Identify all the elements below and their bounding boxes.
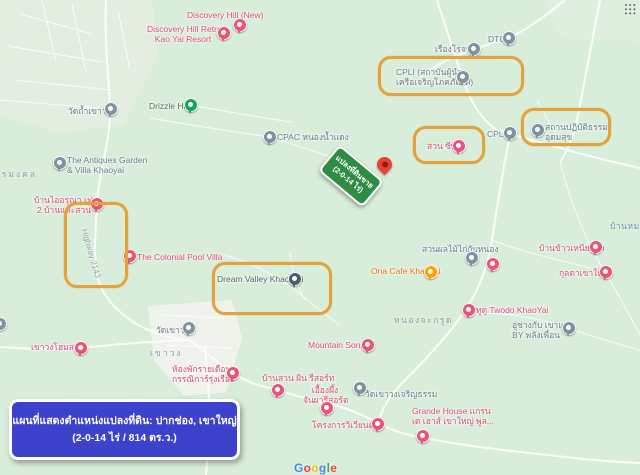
poi-label-grande-house[interactable]: Grande House แกรน เด เฮาส์ เขาใหญ่ พูล..…	[412, 406, 494, 426]
area-label-nong-ja-krut: หนองจะกรูด	[394, 313, 453, 327]
poi-pin-discovery-hill-retreat[interactable]	[217, 26, 229, 44]
poi-pin-discovery-hill-new[interactable]	[233, 18, 245, 36]
google-logo-letter: g	[319, 461, 327, 475]
target-marker-core	[380, 160, 388, 168]
poi-label-discovery-hill-retreat[interactable]: Discovery Hill Retreat Kao Yai Resort	[147, 24, 219, 44]
apps-grid-icon[interactable]	[625, 4, 636, 15]
poi-label-cpac[interactable]: CPAC หนองน้ำแดง	[277, 132, 349, 142]
map-caption-line2: (2-0-14 ไร่ / 814 ตร.ว.)	[72, 430, 177, 446]
poi-label-line: เอื้องผึ้ง	[303, 385, 347, 395]
poi-label-line: Discovery Hill Retreat	[147, 24, 219, 34]
highlight-box-cpli	[378, 56, 524, 96]
poi-label-line: The Antiques Garden	[67, 155, 147, 165]
poi-pin-baan-suan-phin[interactable]	[271, 383, 283, 401]
map-canvas[interactable]: Discovery Hill (New) Discovery Hill Retr…	[0, 0, 640, 475]
poi-label-hong-phak[interactable]: ห้องพักรายเดือน กรรณิการ์รุ่งเรือง	[172, 364, 224, 384]
map-caption-box: แผนที่แสดงตำแหน่งแปลงที่ดิน: ปากช่อง, เข…	[9, 399, 240, 460]
map-caption-line1: แผนที่แสดงตำแหน่งแปลงที่ดิน: ปากช่อง, เข…	[12, 413, 236, 429]
poi-pin-cpac[interactable]	[263, 130, 275, 148]
poi-pin-vivienda-2[interactable]	[371, 417, 383, 435]
poi-label-baan-suan-phin[interactable]: บ้านสวน ผิน รีสอร์ท	[262, 373, 334, 383]
poi-label-line: เด เฮาส์ เขาใหญ่ พูล...	[412, 416, 494, 426]
poi-pin-au-chang[interactable]	[562, 321, 574, 339]
poi-label-wat-khaowong-charoentham[interactable]: วัดเขาวงเจริญธรรม	[365, 389, 437, 399]
poi-pin-grande-house[interactable]	[416, 429, 428, 447]
poi-pin-antiques-garden[interactable]	[53, 156, 65, 174]
highlight-box-highway-area	[64, 202, 128, 288]
google-logo-letter: G	[294, 461, 304, 475]
poi-label-line: Grande House แกรน	[412, 406, 494, 416]
poi-pin-hong-phak[interactable]	[226, 366, 238, 384]
area-label-khaowong: เขาวง	[150, 346, 182, 360]
poi-label-au-chang[interactable]: อู่ช่างกับ เขาแคน BY พลังเพื่อน	[512, 320, 560, 340]
poi-pin-dtc[interactable]	[502, 31, 514, 49]
poi-pin-cpli[interactable]	[503, 126, 515, 144]
highlight-box-suan-cp	[413, 126, 485, 164]
poi-label-line: Kao Yai Resort	[147, 34, 219, 44]
poi-pin-wat-khaowong[interactable]	[182, 321, 194, 339]
poi-label-line: ห้องพักรายเดือน	[172, 364, 224, 374]
poi-label-line: อู่ช่างกับ เขาแคน	[512, 320, 560, 330]
poi-label-colonial-pool-villa[interactable]: The Colonial Pool Villa	[137, 252, 222, 262]
google-logo[interactable]: Google	[294, 461, 337, 475]
poi-pin-baan-khao-niao-dam[interactable]	[589, 240, 601, 258]
highlight-box-dream-valley	[212, 262, 332, 315]
poi-pin-suan-phonlamai[interactable]	[465, 251, 477, 269]
poi-pin-kunta-khaoyai[interactable]	[599, 265, 611, 283]
poi-pin-unlabeled-resort[interactable]	[486, 257, 498, 275]
poi-label-line: BY พลังเพื่อน	[512, 330, 560, 340]
poi-label-discovery-hill-new[interactable]: Discovery Hill (New)	[187, 10, 264, 20]
poi-pin-khaowong-homestay[interactable]	[74, 341, 86, 359]
area-label-thammongkol: ธรรมงคล	[0, 167, 37, 181]
poi-pin-twodo-khaoyai[interactable]	[462, 303, 474, 321]
poi-pin-ueang-phueng[interactable]	[320, 401, 332, 419]
poi-pin-wat-tham-khao-wong[interactable]	[104, 102, 116, 120]
poi-label-antiques-garden[interactable]: The Antiques Garden & Villa Khaoyai	[67, 155, 147, 175]
google-logo-letter: e	[330, 461, 337, 475]
poi-pin-drizzle-hill[interactable]	[184, 98, 196, 116]
poi-label-line: กรรณิการ์รุ่งเรือง	[172, 374, 224, 384]
poi-label-twodo-khaoyai[interactable]: ทูดู Twodo KhaoYai	[476, 305, 548, 315]
poi-pin-wat-khaowong-charoentham[interactable]	[353, 381, 365, 399]
poi-pin-ona-cafe[interactable]	[424, 265, 436, 283]
google-logo-letter: o	[311, 461, 319, 475]
poi-label-suan-phonlamai[interactable]: สวนผลไม้ไก่กับหน่อง	[422, 244, 498, 254]
poi-pin-edge-partial[interactable]	[0, 317, 5, 335]
poi-label-line: & Villa Khaoyai	[67, 165, 147, 175]
highlight-box-meditation-center	[521, 108, 611, 146]
poi-pin-mountain-sonata[interactable]	[361, 338, 373, 356]
area-label-baan-mak: บ้านหมาก	[610, 219, 640, 233]
